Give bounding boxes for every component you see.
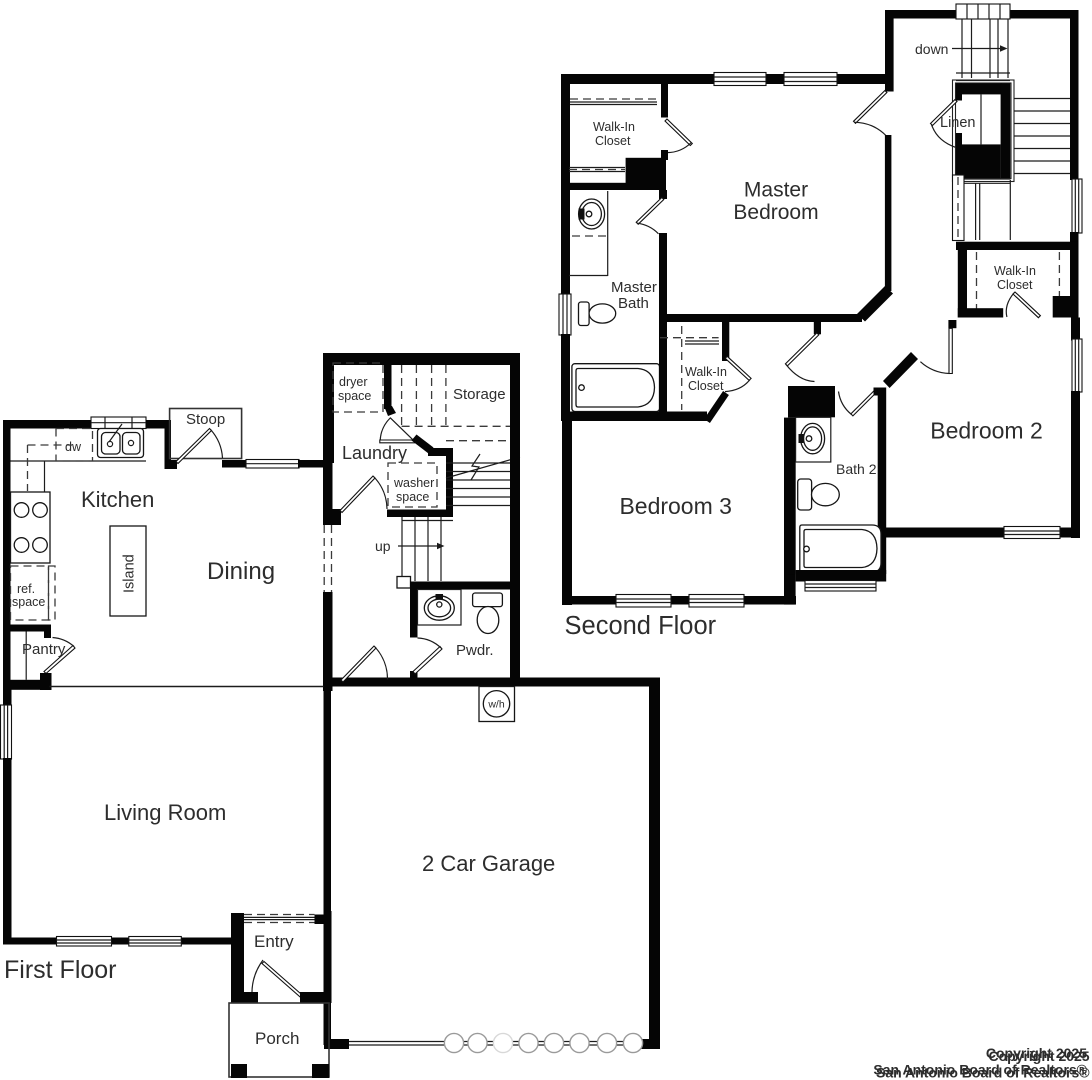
svg-text:w/h: w/h (487, 699, 505, 711)
svg-text:Stoop: Stoop (186, 411, 225, 428)
svg-text:Closet: Closet (997, 278, 1033, 292)
svg-text:Bath 2: Bath 2 (836, 461, 877, 477)
svg-text:Walk-In: Walk-In (685, 365, 727, 379)
svg-text:up: up (375, 538, 391, 554)
svg-text:Closet: Closet (688, 379, 724, 393)
svg-text:Dining: Dining (207, 558, 275, 585)
svg-text:Island: Island (122, 554, 138, 593)
svg-text:Bedroom: Bedroom (733, 201, 818, 224)
svg-text:Living Room: Living Room (104, 800, 226, 825)
svg-text:washer: washer (393, 476, 434, 490)
svg-text:2 Car Garage: 2 Car Garage (422, 851, 555, 876)
svg-text:space: space (12, 595, 45, 609)
svg-text:Pantry: Pantry (22, 641, 66, 658)
svg-text:Kitchen: Kitchen (81, 487, 154, 512)
svg-text:Bedroom 2: Bedroom 2 (930, 418, 1043, 444)
svg-text:down: down (915, 41, 948, 57)
svg-text:dryer: dryer (339, 375, 367, 389)
svg-text:Master: Master (744, 179, 808, 202)
svg-text:First Floor: First Floor (4, 956, 117, 984)
svg-text:Closet: Closet (595, 134, 631, 148)
svg-text:Porch: Porch (255, 1029, 299, 1048)
svg-text:dw: dw (65, 440, 82, 454)
svg-text:Storage: Storage (453, 386, 506, 403)
svg-text:Walk-In: Walk-In (994, 264, 1036, 278)
svg-text:Walk-In: Walk-In (593, 120, 635, 134)
svg-text:space: space (338, 389, 371, 403)
svg-text:Bedroom 3: Bedroom 3 (619, 493, 732, 519)
svg-text:Entry: Entry (254, 932, 294, 951)
svg-text:ref.: ref. (17, 582, 35, 596)
svg-text:Bath: Bath (618, 295, 649, 312)
svg-text:Second Floor: Second Floor (565, 612, 717, 640)
svg-text:space: space (396, 490, 429, 504)
svg-text:San Antonio Board of Realtors®: San Antonio Board of Realtors® (873, 1062, 1087, 1078)
svg-text:Laundry: Laundry (342, 443, 407, 463)
svg-text:Copyright 2025: Copyright 2025 (986, 1045, 1087, 1061)
svg-text:Pwdr.: Pwdr. (456, 642, 494, 659)
svg-text:Master: Master (611, 279, 657, 296)
svg-text:Linen: Linen (940, 115, 975, 131)
